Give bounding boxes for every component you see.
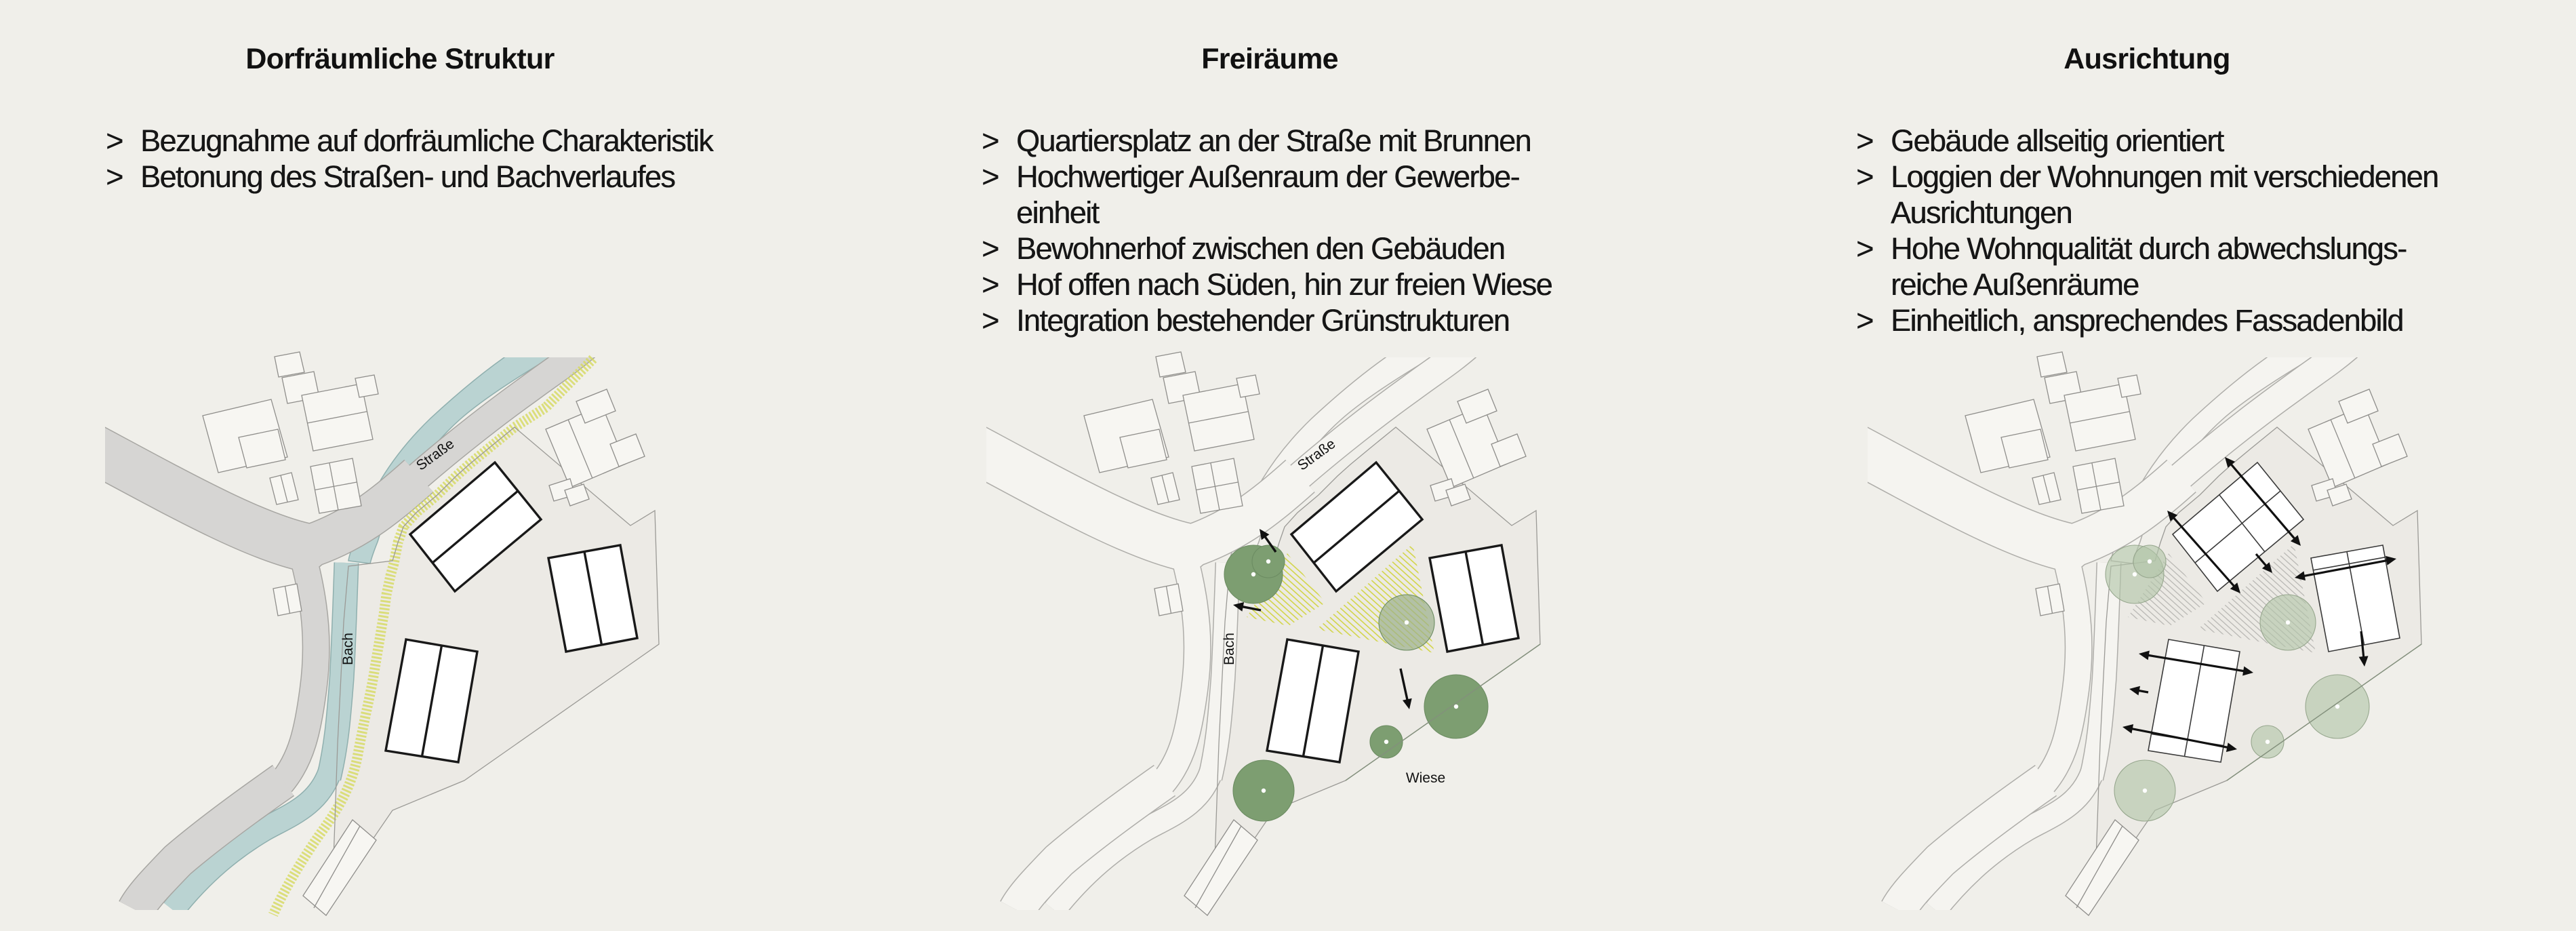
svg-text:Wiese: Wiese [1406, 770, 1445, 786]
svg-text:Bach: Bach [1222, 633, 1237, 665]
svg-text:Bach: Bach [340, 633, 356, 665]
